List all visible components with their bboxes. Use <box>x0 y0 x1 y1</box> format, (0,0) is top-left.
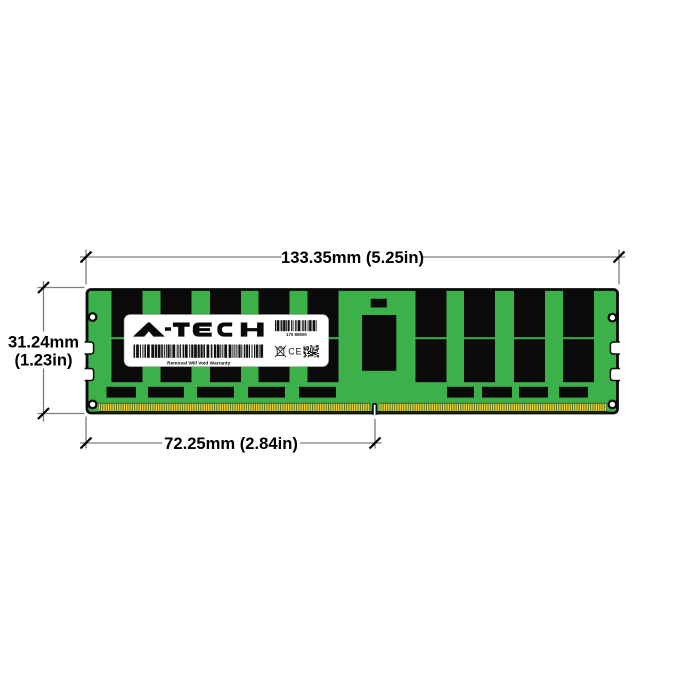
svg-text:133.35mm (5.25in): 133.35mm (5.25in) <box>281 248 424 267</box>
svg-text:CE: CE <box>288 346 302 356</box>
svg-text:31.24mm: 31.24mm <box>8 333 79 352</box>
svg-text:72.25mm (2.84in): 72.25mm (2.84in) <box>164 434 298 453</box>
svg-text:179 88000: 179 88000 <box>286 332 307 337</box>
svg-text:Removal Will Void Warranty: Removal Will Void Warranty <box>167 361 230 367</box>
svg-text:(1.23in): (1.23in) <box>14 351 72 370</box>
